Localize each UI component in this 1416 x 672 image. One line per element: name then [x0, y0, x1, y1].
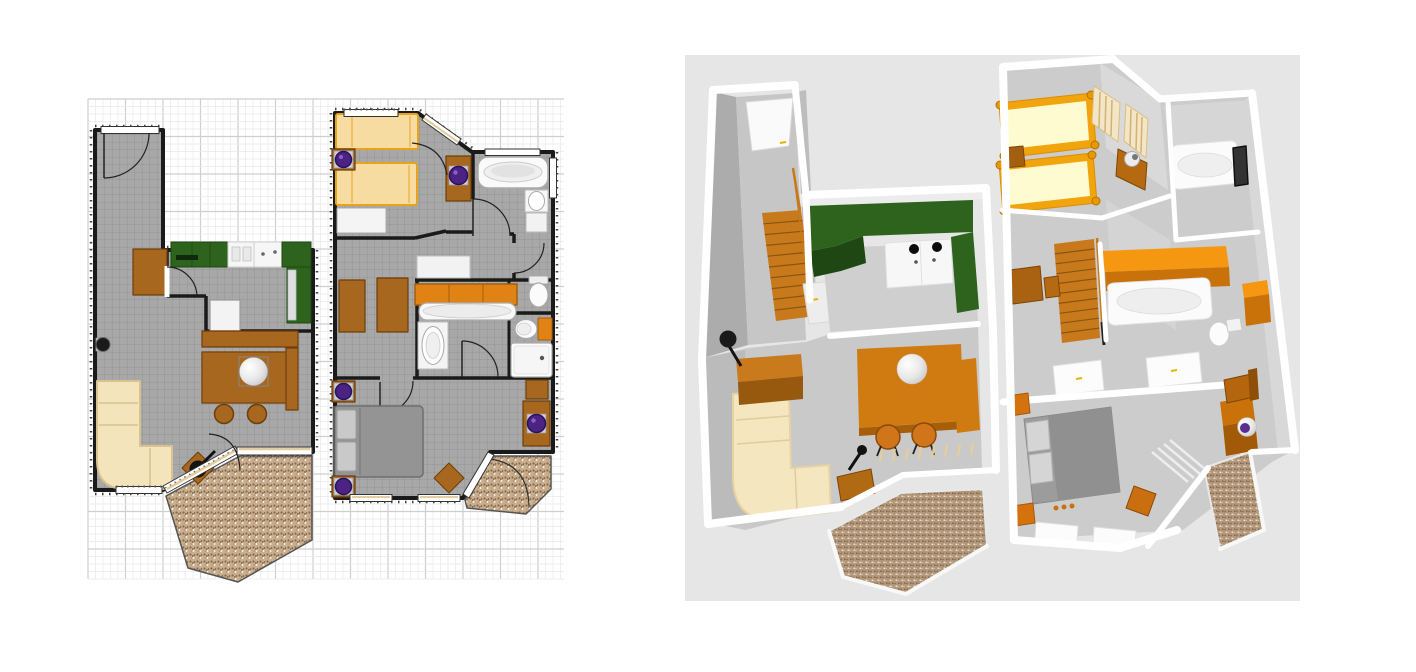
bench-3d[interactable] [953, 358, 980, 433]
purple-lamp[interactable] [336, 384, 352, 400]
toilet-bowl[interactable] [529, 283, 548, 307]
burner [909, 244, 919, 254]
bed-post [1091, 141, 1099, 149]
bed-post [1088, 151, 1096, 159]
lamp-highlight [531, 418, 535, 422]
window[interactable] [550, 158, 557, 198]
kitchen-faucet [176, 255, 198, 260]
fridge[interactable] [210, 300, 240, 331]
curtain-stripe [1111, 100, 1112, 136]
door-handle-mark [780, 142, 786, 143]
bed-pillow-3d [1029, 452, 1053, 484]
curtain-stripe [1099, 92, 1100, 128]
purple-lamp[interactable] [528, 415, 546, 433]
bed-blanket-3d [1048, 407, 1120, 501]
mirror-door [1233, 146, 1248, 186]
burner [932, 242, 942, 252]
sink-basin [243, 247, 251, 261]
kitchen-counter[interactable] [171, 242, 228, 267]
render-3d[interactable] [685, 55, 1300, 601]
lamp-highlight [453, 170, 457, 174]
bathtub-3d-inner [1178, 153, 1232, 177]
bed-pillow-3d [1026, 420, 1050, 452]
office-chair-3d[interactable] [1044, 276, 1060, 298]
hall-cabinet[interactable] [133, 249, 167, 295]
burner-mark [932, 258, 936, 262]
bed-pillow [337, 442, 356, 471]
kids-dresser[interactable] [337, 208, 386, 233]
kitchen-door-gap[interactable] [165, 266, 170, 297]
dining-chair[interactable] [215, 405, 234, 424]
toilet-tank-2 [538, 318, 552, 340]
table-lamp-globe[interactable] [240, 358, 268, 386]
cabinet-3d-front [1244, 294, 1271, 326]
outer-wall [713, 85, 795, 90]
outer-wall [1252, 450, 1295, 452]
sink-oval-inner [426, 333, 440, 359]
vanity-cabinet[interactable] [415, 284, 517, 305]
toilet-rim-2 [517, 323, 531, 335]
purple-lamp[interactable] [336, 152, 352, 168]
entry-door-3d[interactable] [746, 98, 793, 151]
stool-3d[interactable] [876, 425, 900, 449]
stove-3d[interactable] [885, 239, 953, 288]
upper-floor-3d[interactable] [996, 59, 1295, 549]
dishwasher [288, 270, 296, 320]
curtain-stripe [1136, 113, 1137, 150]
bath-cabinet[interactable] [526, 213, 547, 232]
stool-3d[interactable] [912, 423, 936, 447]
window-latch-mark [1076, 378, 1082, 379]
stove-burner-mark [261, 252, 265, 256]
bathtub-main-3d-inner [1117, 288, 1201, 314]
window-latch-mark [1171, 370, 1177, 371]
scene-svg[interactable] [0, 0, 1416, 672]
landing-table[interactable] [417, 256, 470, 278]
table-globe-lamp[interactable] [897, 354, 927, 384]
toilet-tank-3d [1226, 318, 1242, 332]
office-desk[interactable] [377, 278, 408, 332]
stove-burner-mark [273, 250, 277, 254]
curtain-stripe [1130, 109, 1131, 146]
bathtub-main-inner [423, 304, 511, 318]
shower-drain [540, 356, 544, 360]
dining-bench[interactable] [202, 331, 298, 347]
toilet-3d[interactable] [1209, 322, 1229, 346]
slipper [1062, 505, 1067, 510]
burner-mark [914, 260, 918, 264]
app-canvas [0, 0, 1416, 672]
bed-pillow [337, 410, 356, 439]
window[interactable] [344, 110, 398, 117]
purple-lamp-3d [1240, 423, 1250, 433]
purple-lamp[interactable] [336, 479, 352, 495]
window[interactable] [116, 487, 162, 494]
office-desk[interactable] [339, 280, 365, 332]
curtain-stripe [1105, 96, 1106, 132]
sink-basin [232, 247, 240, 261]
sink-bowl [529, 192, 545, 211]
bedroom-shelf[interactable] [526, 380, 548, 399]
wall-lamp[interactable] [96, 338, 110, 352]
entry-door-gap[interactable] [101, 127, 159, 134]
kitchen-stove[interactable] [254, 242, 282, 267]
slipper [1054, 506, 1059, 511]
bathtub-water [491, 165, 535, 178]
desk-lamp-shade [1132, 154, 1138, 160]
lamp-highlight [339, 155, 343, 159]
desk-lamp-3d [1125, 152, 1140, 167]
dining-bench[interactable] [286, 348, 298, 410]
slipper [1070, 504, 1075, 509]
office-desk-3d[interactable] [1010, 266, 1043, 304]
floor-lamp-head[interactable] [720, 331, 737, 348]
kitchen-counter[interactable] [282, 242, 311, 267]
kids-bed[interactable] [336, 114, 418, 149]
bed-post [1092, 197, 1100, 205]
upper-floor-plan[interactable] [331, 109, 557, 514]
window[interactable] [485, 149, 540, 156]
dining-chair[interactable] [248, 405, 267, 424]
shower-inner [514, 346, 549, 374]
side-lamp-head-3d [857, 445, 867, 455]
purple-lamp[interactable] [450, 167, 468, 185]
curtain-stripe [1141, 117, 1142, 153]
